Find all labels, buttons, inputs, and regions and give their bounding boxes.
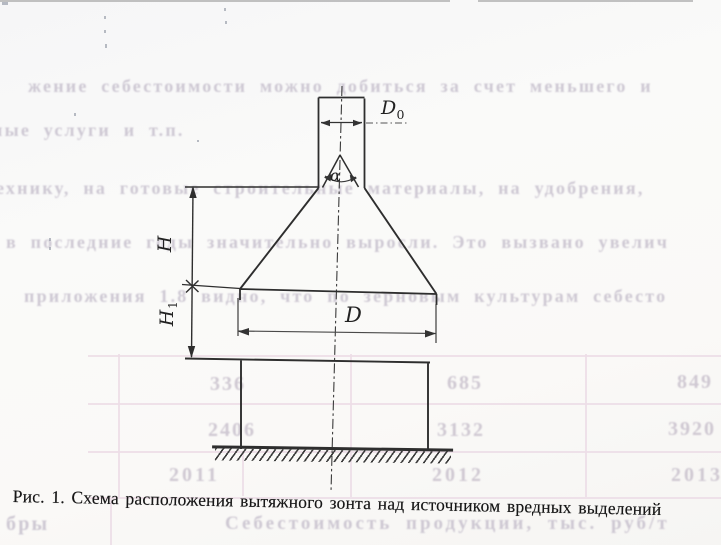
source-box <box>185 359 430 452</box>
hood-rim <box>240 289 437 305</box>
label-d0-sub: 0 <box>397 107 405 122</box>
d-extension-lines <box>238 298 436 343</box>
arrowhead-right <box>353 120 362 126</box>
label-d0-main: D <box>380 97 396 119</box>
arrowhead-left <box>238 328 249 336</box>
d-dimension-line <box>238 331 436 334</box>
label-h1-main: H <box>156 309 178 327</box>
label-h1-sub: 1 <box>166 301 180 309</box>
label-h: H <box>154 235 176 253</box>
arrowhead-down <box>188 346 195 358</box>
label-d: D <box>344 303 362 327</box>
centerline <box>331 86 342 492</box>
label-alpha: α <box>330 166 341 185</box>
ground-hatch <box>212 445 453 464</box>
hatch-strokes <box>215 448 451 463</box>
arrowhead-right <box>425 330 436 338</box>
height-dimension-line <box>192 188 194 357</box>
scanned-page: жение себестоимости можно добиться за сч… <box>0 0 721 545</box>
arrowhead-up <box>189 186 196 198</box>
arrowhead-left <box>321 120 330 126</box>
